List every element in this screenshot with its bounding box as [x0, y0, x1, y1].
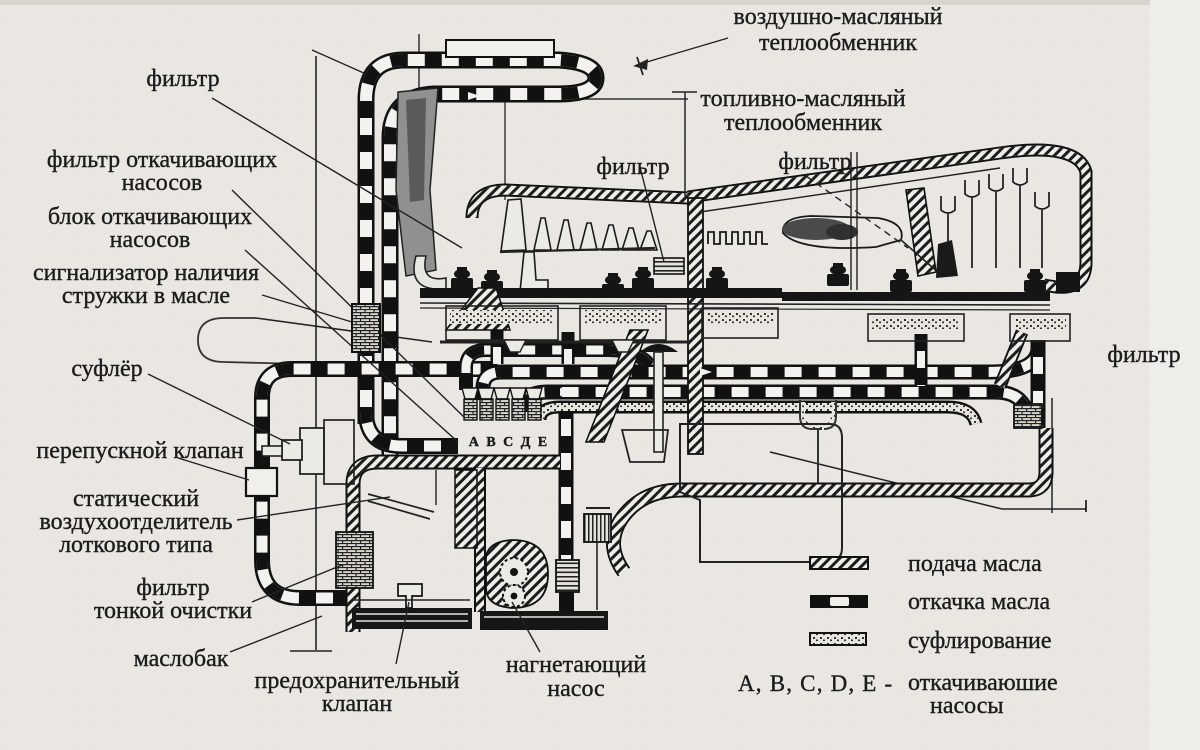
- svg-text:насос: насос: [547, 676, 604, 702]
- svg-text:теплообменник: теплообменник: [724, 110, 882, 136]
- svg-text:маслобак: маслобак: [134, 646, 229, 672]
- svg-text:топливно-масляный: топливно-масляный: [700, 86, 905, 112]
- svg-text:А, В, С, D, Е -: А, В, С, D, Е -: [738, 671, 893, 696]
- svg-text:суфлирование: суфлирование: [908, 628, 1052, 654]
- svg-text:фильтр: фильтр: [1107, 342, 1180, 368]
- svg-text:тонкой очистки: тонкой очистки: [94, 598, 252, 624]
- svg-text:А В С Д Е: А В С Д Е: [469, 435, 550, 450]
- svg-text:клапан: клапан: [322, 691, 392, 717]
- svg-text:насосов: насосов: [122, 170, 203, 196]
- svg-text:подача масла: подача масла: [908, 551, 1042, 577]
- svg-text:лоткового типа: лоткового типа: [59, 532, 213, 558]
- svg-text:фильтр: фильтр: [778, 149, 851, 175]
- svg-text:фильтр: фильтр: [146, 66, 219, 92]
- svg-text:откачка масла: откачка масла: [908, 589, 1050, 615]
- svg-text:перепускной клапан: перепускной клапан: [36, 438, 243, 464]
- svg-text:нагнетающий: нагнетающий: [506, 652, 647, 678]
- svg-text:фильтр: фильтр: [596, 154, 669, 180]
- svg-text:теплообменник: теплообменник: [759, 30, 917, 56]
- svg-text:суфлёр: суфлёр: [71, 356, 142, 382]
- svg-text:воздушно-масляный: воздушно-масляный: [734, 4, 943, 30]
- svg-text:насосов: насосов: [110, 227, 191, 253]
- svg-text:насосы: насосы: [930, 693, 1004, 719]
- svg-text:стружки в масле: стружки в масле: [62, 283, 230, 309]
